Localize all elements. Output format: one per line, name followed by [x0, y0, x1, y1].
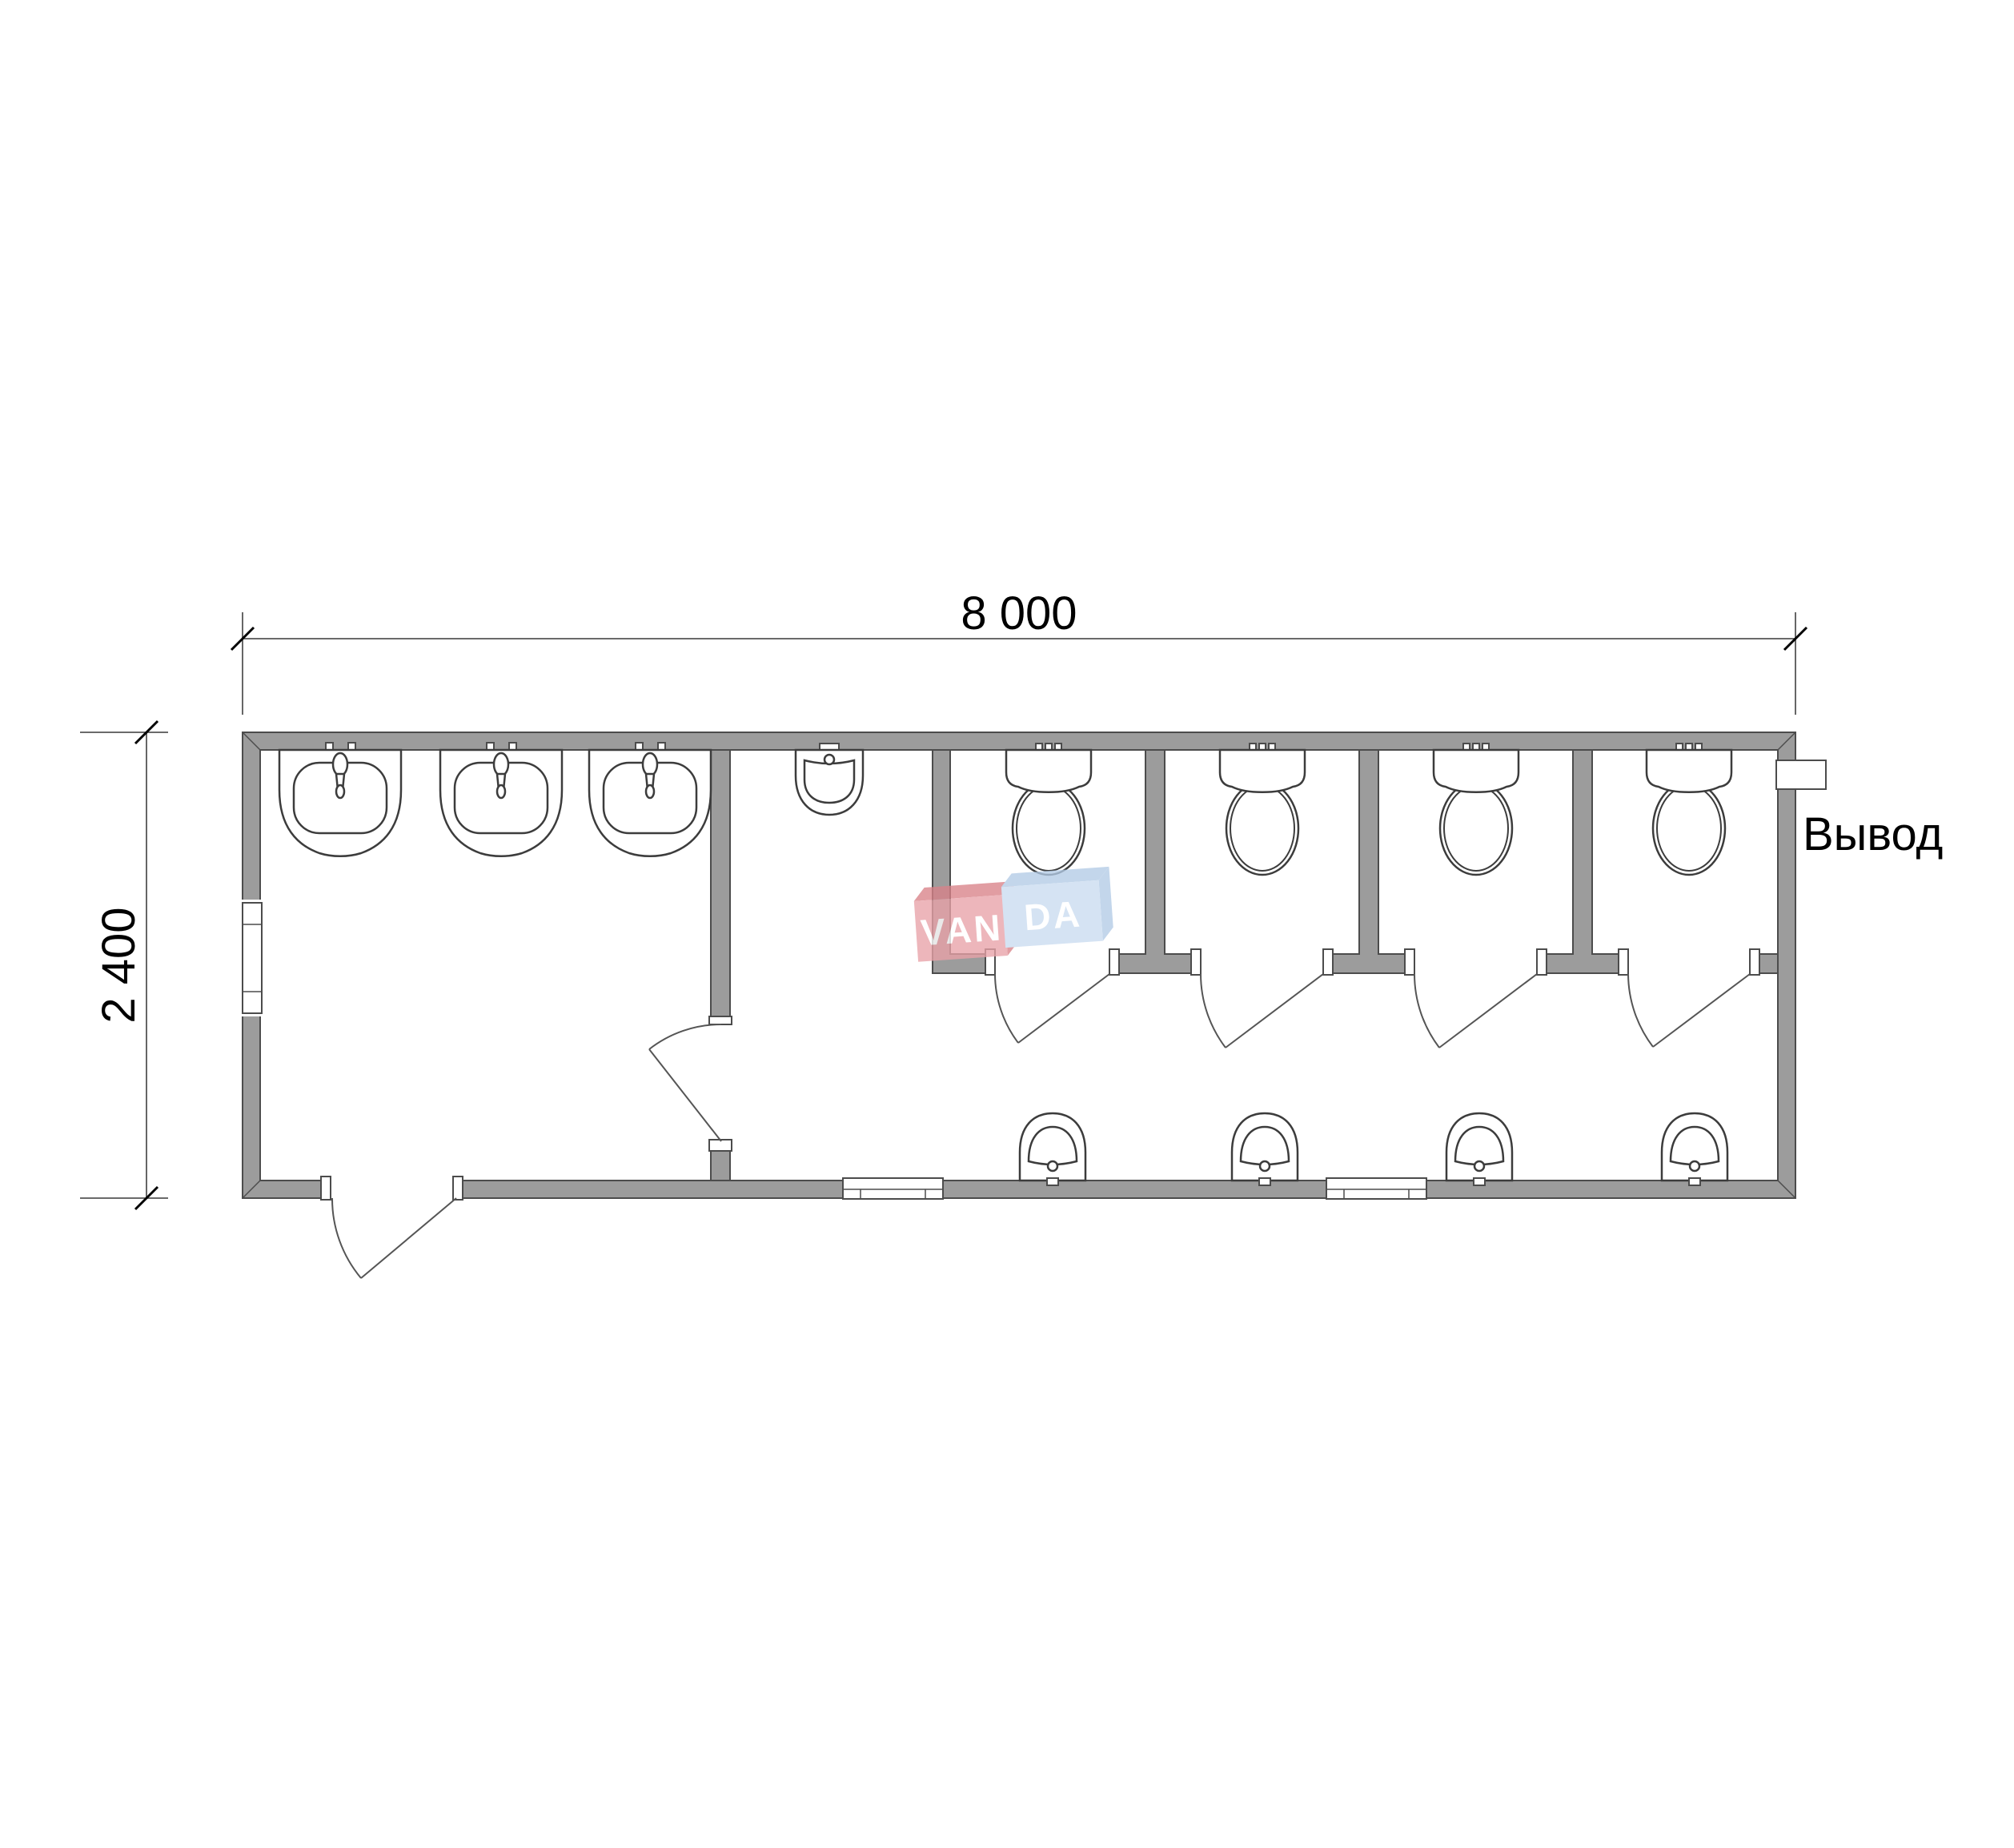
door-jamb: [1619, 949, 1628, 975]
door-jamb: [709, 1016, 732, 1024]
width-dimension-label: 8 000: [961, 587, 1077, 639]
dimension-width: 8 000: [231, 587, 1807, 715]
floor-urinal-1: [1020, 1113, 1085, 1185]
washbasin-1: [279, 743, 401, 856]
door-jamb: [321, 1177, 331, 1200]
door-jamb: [1750, 949, 1759, 975]
window-left: [241, 900, 263, 1016]
window-bottom-2: [1326, 1177, 1427, 1201]
floor-urinal-3: [1446, 1113, 1512, 1185]
outlet-stub: [1776, 760, 1826, 789]
height-dimension-label: 2 400: [93, 907, 145, 1023]
floor-plan-drawing: 8 000 2 400: [0, 0, 2014, 1848]
outlet: Вывод: [1776, 760, 1943, 860]
entrance-door-swing: [332, 1198, 361, 1278]
window-bottom-1: [842, 1177, 944, 1201]
washbasin-3: [589, 743, 711, 856]
toilet-2: [1220, 744, 1305, 875]
wall-urinal: [796, 744, 863, 815]
washroom-partition: [711, 750, 730, 1016]
door-jamb: [1109, 949, 1119, 975]
washroom-partition-stub: [711, 1151, 730, 1181]
entrance-door-leaf: [361, 1198, 456, 1278]
watermark-text-right: DA: [1023, 892, 1084, 938]
dimension-height: 2 400: [80, 721, 168, 1209]
door-jamb: [1191, 949, 1201, 975]
toilet-4: [1647, 744, 1731, 875]
outlet-label: Вывод: [1803, 808, 1943, 860]
door-jamb: [1405, 949, 1414, 975]
floor-plan-page: 8 000 2 400: [0, 0, 2014, 1848]
watermark-text-left: VAN: [919, 906, 1004, 953]
toilet-1: [1006, 744, 1091, 875]
stall-wall-right: [1759, 954, 1778, 973]
door-jamb: [1323, 949, 1333, 975]
door-jamb: [1537, 949, 1547, 975]
floor-urinal-2: [1232, 1113, 1298, 1185]
entrance-door: [321, 1177, 463, 1278]
toilet-3: [1434, 744, 1519, 875]
floor-urinal-4: [1662, 1113, 1727, 1185]
washbasin-2: [440, 743, 562, 856]
door-jamb: [453, 1177, 463, 1200]
